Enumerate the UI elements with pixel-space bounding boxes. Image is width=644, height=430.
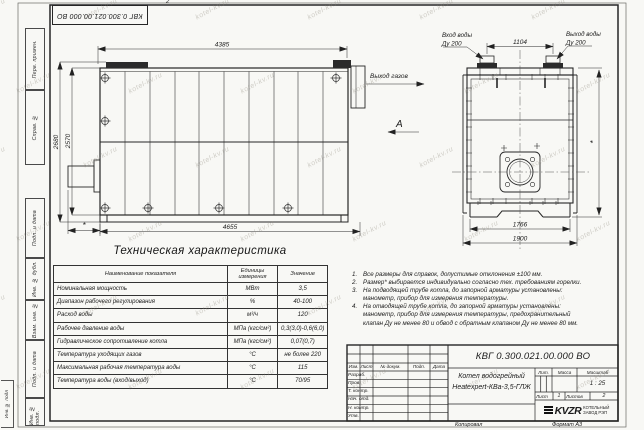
col-header-value: Значение xyxy=(278,266,328,283)
param-unit: % xyxy=(228,296,278,309)
param-value: 0,07(0,7) xyxy=(278,335,328,348)
datum-targets xyxy=(100,73,342,214)
strip-perv-primen: Перв. примен. xyxy=(25,28,45,90)
corner-strip-label: Инв. № подл xyxy=(5,390,10,418)
param-value: 40-100 xyxy=(278,296,328,309)
dim-asterisk-front: * xyxy=(589,140,598,144)
param-unit: МПа (кгс/см²) xyxy=(228,335,278,348)
tb-lit-label: Лит. xyxy=(535,370,552,375)
dim-height-inner: 2570 xyxy=(65,133,72,149)
strip-podp-data-2: Подп. и дата xyxy=(25,340,45,398)
strip-label: Перв. примен. xyxy=(32,40,38,78)
note-number: 3. xyxy=(352,287,363,303)
strip-label: Подп. и дата xyxy=(32,351,38,387)
company-cell: KVZR КОТЕЛЬНЫЙЗАВОД РЭП xyxy=(535,400,618,421)
dim-asterisk-side: * xyxy=(82,221,86,230)
dim-top-length: 4385 xyxy=(215,42,230,49)
title-block: Изм. Лист № докум. Подп. Дата Разраб. Пр… xyxy=(347,345,618,421)
param-value: 70/95 xyxy=(278,375,328,388)
param-value: 0,3(3,0)-0,6(6,0) xyxy=(278,322,328,335)
strip-label: Инв. № подл. xyxy=(29,399,41,425)
chimney-stub xyxy=(333,60,351,68)
company-name-line2: ЗАВОД РЭП xyxy=(583,411,609,416)
tb-sheets-label: Листов xyxy=(566,394,590,399)
param-name: Гидравлическое сопротивление котла xyxy=(54,335,228,348)
param-unit: МВт xyxy=(228,283,278,296)
dim-bottom-length: 4655 xyxy=(223,224,238,231)
lifting-lug xyxy=(106,62,148,68)
table-row: Рабочее давление водыМПа (кгс/см²)0,3(3,… xyxy=(54,322,328,335)
param-name: Максимальная рабочая температура воды xyxy=(54,362,228,375)
tb-col-list: Лист xyxy=(360,364,373,369)
param-unit: м³/ч xyxy=(228,309,278,322)
param-unit: °С xyxy=(228,348,278,361)
param-value: 115 xyxy=(278,362,328,375)
param-name: Рабочее давление воды xyxy=(54,322,228,335)
strip-label: Взам. инв. № xyxy=(32,302,38,338)
tb-scale-label: Масштаб xyxy=(577,370,618,375)
note-4: 4.На отводящей трубе котла, до запорной … xyxy=(352,303,592,327)
note-number: 4. xyxy=(352,303,363,327)
table-row: Гидравлическое сопротивление котлаМПа (к… xyxy=(54,335,328,348)
param-name: Расход воды xyxy=(54,309,228,322)
param-value: 120 xyxy=(278,309,328,322)
drawing-sheet: 4385 4655 2680 2570 * Выход газов А xyxy=(0,0,644,430)
note-number: 1. xyxy=(352,271,363,279)
outlet-flange xyxy=(543,63,563,68)
tb-sheet-value: 1 xyxy=(553,393,565,399)
param-unit: °С xyxy=(228,375,278,388)
table-row: Диапазон рабочего регулирования%40-100 xyxy=(54,296,328,309)
company-name: КОТЕЛЬНЫЙЗАВОД РЭП xyxy=(583,406,609,415)
note-text: Размер* выбирается индивидуально согласн… xyxy=(363,279,592,287)
tb-row-nachotd: Нач. отд. xyxy=(348,397,370,402)
strip-sprav-no: Справ. № xyxy=(25,90,45,165)
param-name: Диапазон рабочего регулирования xyxy=(54,296,228,309)
note-text: Все размеры для справок, допустимые откл… xyxy=(363,271,592,279)
zone-mark: 2 xyxy=(166,0,169,5)
tb-sheets-value: 2 xyxy=(590,393,618,399)
top-doc-number: КВГ 0.300.021.00.000 ВО xyxy=(57,12,143,19)
param-name: Температура уходящих газов xyxy=(54,348,228,361)
table-row: Температура воды (вход/выход)°С70/95 xyxy=(54,375,328,388)
water-inlet-label: Вход воды xyxy=(442,32,472,39)
tb-row-nkontr: Н. контр. xyxy=(348,406,370,411)
format-label: Формат А3 xyxy=(552,422,582,428)
water-inlet-dn: Ду 200 xyxy=(441,41,462,48)
tb-row-tkontr: Т. контр. xyxy=(348,389,369,394)
table-row: Температура уходящих газов°Сне более 220 xyxy=(54,348,328,361)
tech-table-title: Техническая характеристика xyxy=(90,245,310,257)
dim-nozzle-spacing: 1104 xyxy=(513,39,527,46)
top-reference-stamp: КВГ 0.300.021.00.000 ВО xyxy=(52,5,148,25)
copied-label: Копировал xyxy=(455,422,482,428)
col-header-units: Единицы измерения xyxy=(228,266,278,283)
tb-product-name-1: Котел водогрейный xyxy=(448,373,535,380)
gas-outlet-label: Выход газов xyxy=(370,72,408,80)
note-2: 2.Размер* выбирается индивидуально согла… xyxy=(352,279,592,287)
note-text: На подводящей трубе котла, до запорной а… xyxy=(363,287,592,303)
kvzr-logo-text: KVZR xyxy=(555,405,582,417)
tb-doc-number: КВГ 0.300.021.00.000 ВО xyxy=(448,345,618,368)
table-row: Максимальная рабочая температура воды°С1… xyxy=(54,362,328,375)
tb-col-dokum: № докум. xyxy=(373,364,408,369)
strip-podp-data-1: Подп. и дата xyxy=(25,198,45,258)
param-value: не более 220 xyxy=(278,348,328,361)
tb-row-prov: Пров. xyxy=(348,381,361,386)
water-outlet-label: Выход воды xyxy=(566,31,601,38)
tb-row-utv: Утв. xyxy=(348,414,359,419)
tb-col-podp: Подп. xyxy=(408,364,430,369)
dim-width-outer: 1900 xyxy=(513,236,528,243)
inlet-flange xyxy=(477,63,497,68)
note-3: 3.На подводящей трубе котла, до запорной… xyxy=(352,287,592,303)
note-number: 2. xyxy=(352,279,363,287)
tb-mass-label: Масса xyxy=(552,370,577,375)
tech-table-header-row: Наименование показателя Единицы измерени… xyxy=(54,266,328,283)
strip-label: Инв. № дубл. xyxy=(32,261,38,297)
param-unit: °С xyxy=(228,362,278,375)
param-name: Номинальная мощность xyxy=(54,283,228,296)
param-value: 3,5 xyxy=(278,283,328,296)
strip-label: Подп. и дата xyxy=(32,210,38,246)
tb-scale-value: 1 : 25 xyxy=(577,380,618,387)
tb-col-data: Дата xyxy=(430,364,448,369)
tb-row-razrab: Разраб. xyxy=(348,373,365,378)
param-name: Температура воды (вход/выход) xyxy=(54,375,228,388)
water-outlet-dn: Ду 200 xyxy=(565,40,586,47)
note-1: 1.Все размеры для справок, допустимые от… xyxy=(352,271,592,279)
col-header-name: Наименование показателя xyxy=(54,266,228,283)
tb-sheet-label: Лист xyxy=(536,394,552,399)
strip-inv-dubl: Инв. № дубл. xyxy=(25,258,45,300)
strip-label: Справ. № xyxy=(32,114,38,140)
tb-col-izm: Изм. xyxy=(347,364,360,369)
corner-strip: Инв. № подл xyxy=(1,380,14,428)
dim-width-inner: 1766 xyxy=(513,222,528,229)
notes-list: 1.Все размеры для справок, допустимые от… xyxy=(352,271,592,328)
strip-inv-podl: Инв. № подл. xyxy=(25,398,45,426)
strip-vzam-inv: Взам. инв. № xyxy=(25,300,45,340)
kvzr-logo-icon xyxy=(544,406,553,415)
tb-product-name-2: Heatexpert-КВа-3,5-ГЛЖ xyxy=(448,384,535,391)
tech-table: Наименование показателя Единицы измерени… xyxy=(53,265,328,389)
param-unit: МПа (кгс/см²) xyxy=(228,322,278,335)
table-row: Номинальная мощностьМВт3,5 xyxy=(54,283,328,296)
note-text: На отводящей трубе котла, до запорной ар… xyxy=(363,303,592,327)
view-a-label: А xyxy=(395,119,403,130)
dim-height-outer: 2680 xyxy=(53,134,60,150)
table-row: Расход водым³/ч120 xyxy=(54,309,328,322)
